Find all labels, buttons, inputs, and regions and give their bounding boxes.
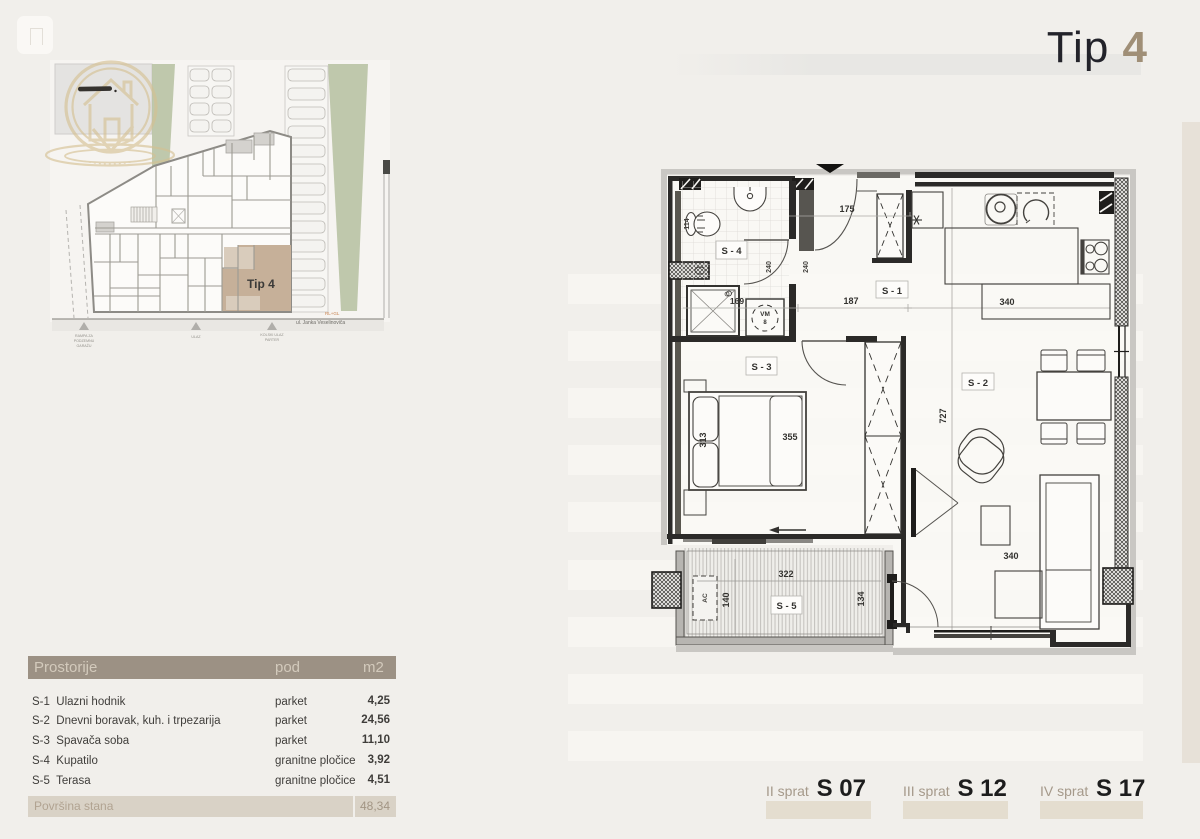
svg-text:Tip 4: Tip 4 <box>247 277 275 291</box>
svg-text:114: 114 <box>684 218 691 229</box>
svg-text:355: 355 <box>782 432 797 442</box>
svg-text:340: 340 <box>1003 551 1018 561</box>
svg-text:KOLSKI ULAZ: KOLSKI ULAZ <box>260 333 284 337</box>
svg-text:313: 313 <box>698 432 708 447</box>
svg-text:PODZEMNU: PODZEMNU <box>74 339 95 343</box>
svg-text:322: 322 <box>778 569 793 579</box>
svg-text:169: 169 <box>730 296 744 306</box>
svg-text:GARAŽU: GARAŽU <box>77 343 92 348</box>
svg-text:S - 2: S - 2 <box>968 378 988 389</box>
svg-text:PARTER: PARTER <box>265 338 280 342</box>
svg-text:134: 134 <box>856 591 866 606</box>
svg-text:VM: VM <box>760 311 770 318</box>
svg-text:S - 3: S - 3 <box>751 362 771 373</box>
svg-text:240: 240 <box>803 261 810 273</box>
svg-text:340: 340 <box>999 297 1014 307</box>
svg-text:S - 5: S - 5 <box>776 601 797 612</box>
svg-text:140: 140 <box>721 592 731 607</box>
svg-text:ULAZ: ULAZ <box>191 335 201 339</box>
svg-text:727: 727 <box>938 408 948 423</box>
svg-text:RL+GL: RL+GL <box>325 311 340 316</box>
svg-text:S - 1: S - 1 <box>882 286 903 297</box>
svg-text:RAMPA ZA: RAMPA ZA <box>75 334 94 338</box>
svg-text:ul. Janka Veselinoviča: ul. Janka Veselinoviča <box>296 320 345 326</box>
svg-text:175: 175 <box>839 204 854 214</box>
svg-text:AC: AC <box>702 593 709 603</box>
svg-text:S - 4: S - 4 <box>721 246 742 257</box>
svg-text:187: 187 <box>843 296 858 306</box>
svg-text:240: 240 <box>766 261 773 273</box>
